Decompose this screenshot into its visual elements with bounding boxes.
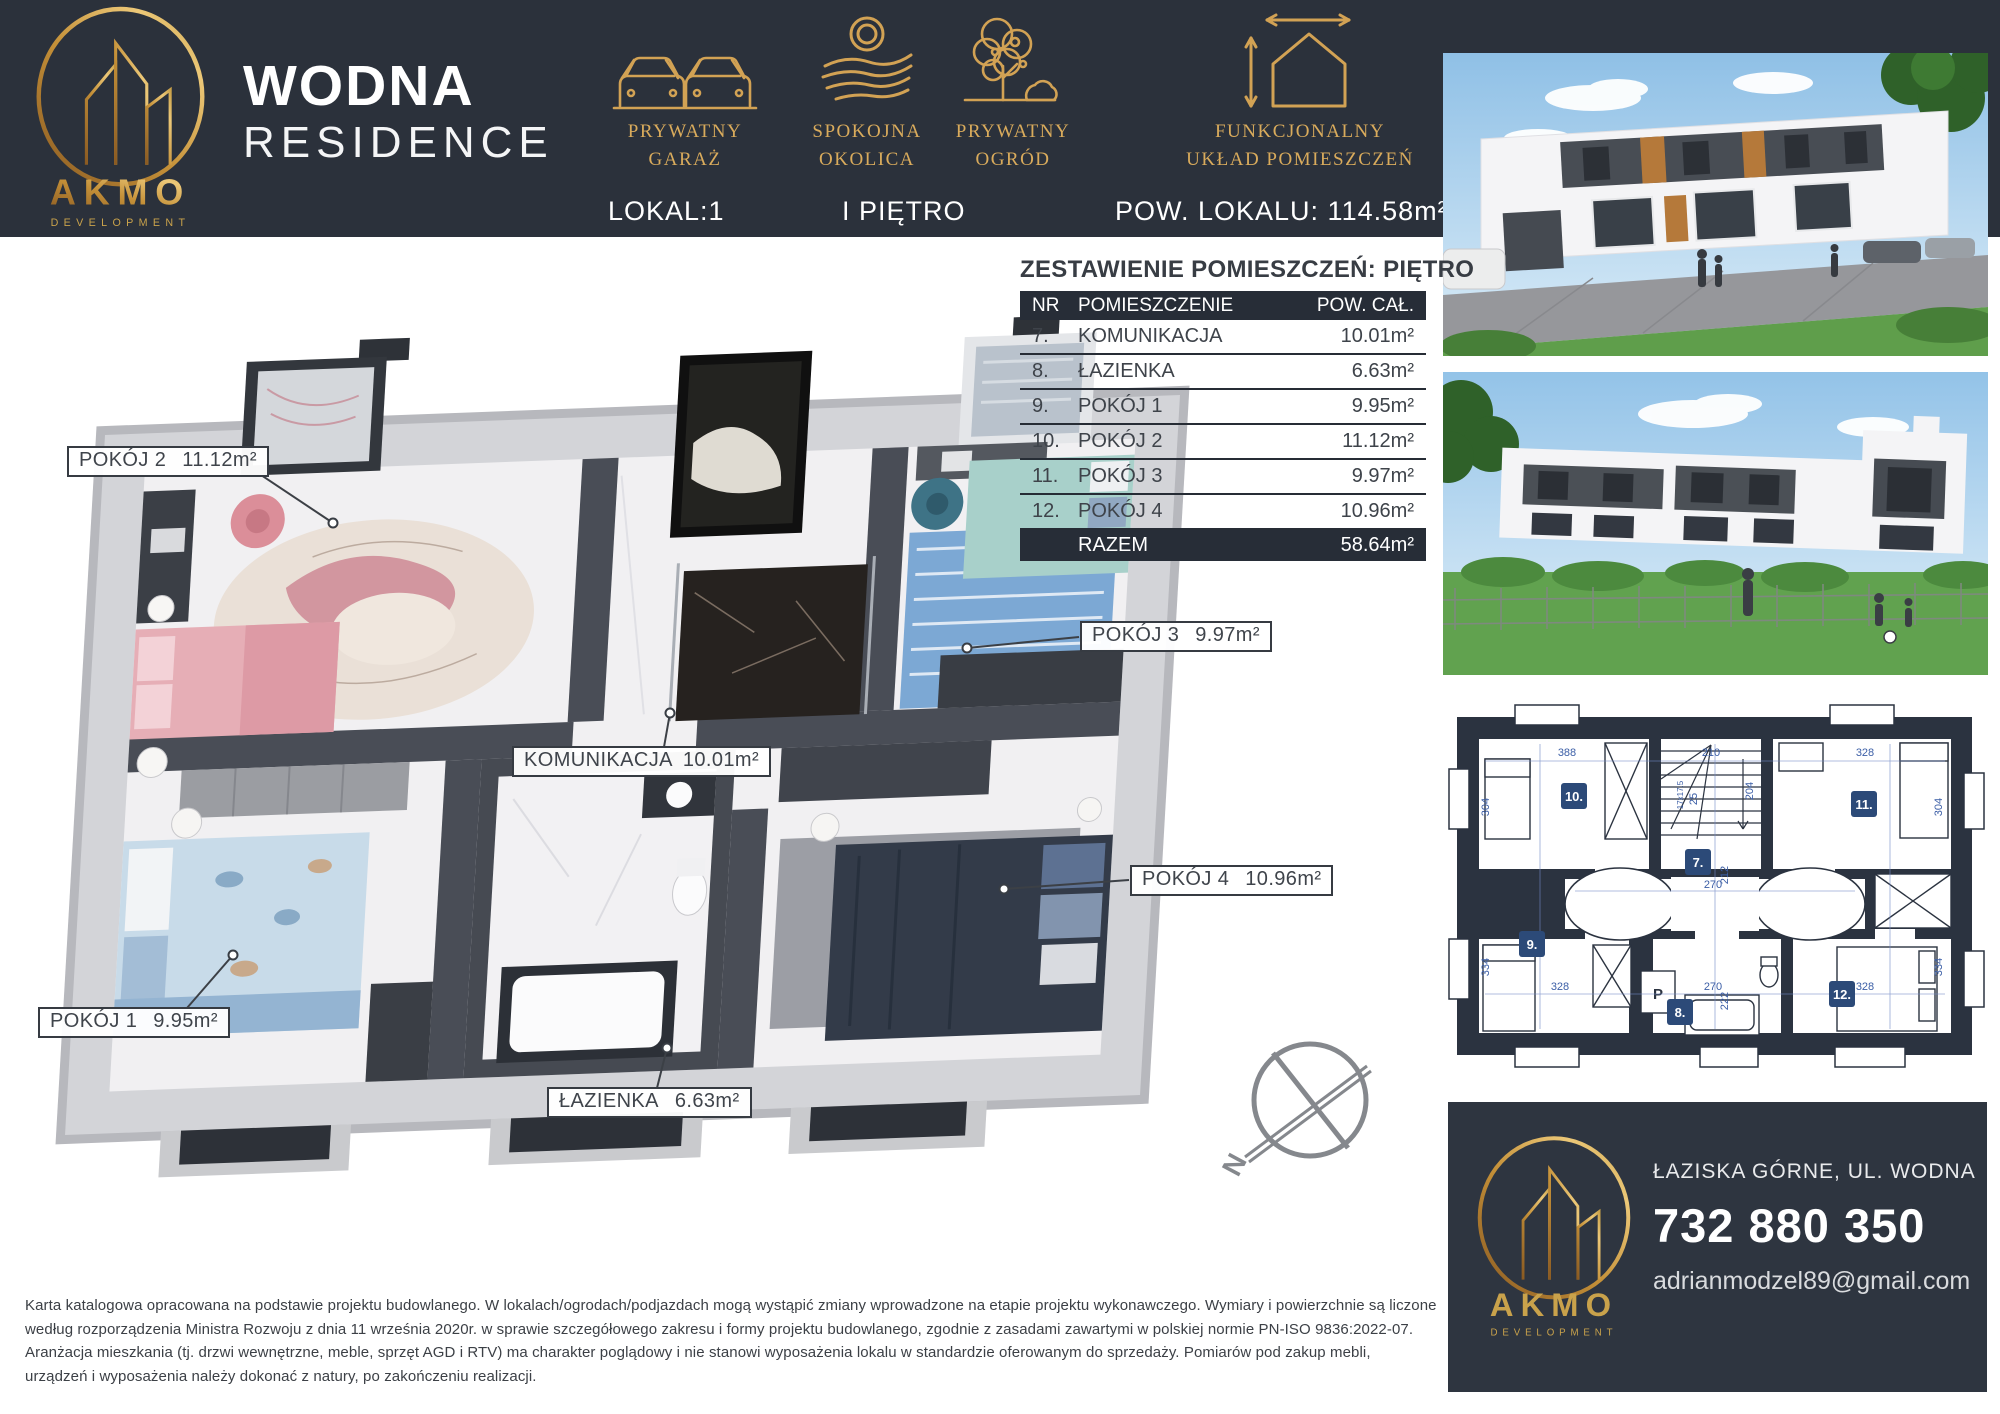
floor-name: I PIĘTRO (842, 196, 966, 227)
corridor-komunikacja (669, 556, 874, 721)
house-dimensions-icon (1237, 12, 1363, 112)
photo-building-street-view (1443, 53, 1988, 356)
svg-text:25: 25 (1688, 793, 1700, 805)
rooms-table-header: NR POMIESZCZENIE POW. CAŁ. (1020, 291, 1426, 320)
feature-label: FUNKCJONALNYUKŁAD POMIESZCZEŃ (1160, 118, 1440, 173)
svg-text:9.: 9. (1527, 937, 1538, 952)
compass-north-letter: N (1216, 1148, 1253, 1180)
brand-subtitle: DEVELOPMENT (1491, 1327, 1618, 1338)
table-row: 11.POKÓJ 39.97m² (1020, 460, 1426, 495)
feature-quiet-area: SPOKOJNAOKOLICA (782, 0, 952, 185)
brand-name: AKMO (1490, 1286, 1618, 1323)
label-pokoj4: POKÓJ 410.96m² (1130, 865, 1333, 896)
project-title: WODNA RESIDENCE (243, 58, 554, 165)
col-area: POW. CAŁ. (1296, 295, 1414, 317)
label-komunikacja: KOMUNIKACJA10.01m² (512, 746, 771, 777)
svg-text:17x17.5: 17x17.5 (1676, 780, 1685, 809)
washer-label: P (1653, 986, 1663, 1003)
contact-logo: AKMO DEVELOPMENT (1470, 1124, 1638, 1354)
logo-building-icon (79, 43, 178, 165)
car-dark (1863, 241, 1921, 263)
svg-text:304: 304 (1480, 798, 1492, 816)
svg-text:204: 204 (1744, 782, 1756, 800)
svg-text:210: 210 (1702, 747, 1720, 759)
rooms-table: ZESTAWIENIE POMIESZCZEŃ: PIĘTRO NR POMIE… (1020, 256, 1426, 561)
feature-functional-layout: FUNKCJONALNYUKŁAD POMIESZCZEŃ (1160, 0, 1440, 185)
room-lazienka (463, 750, 735, 1078)
col-name: POMIESZCZENIE (1078, 295, 1296, 317)
label-pokoj2: POKÓJ 211.12m² (67, 446, 269, 477)
svg-text:328: 328 (1856, 981, 1874, 993)
table-row: 12.POKÓJ 410.96m² (1020, 495, 1426, 530)
svg-text:334: 334 (1480, 958, 1492, 976)
tree-icon (951, 12, 1075, 112)
feature-label: PRYWATNYOGRÓD (928, 118, 1098, 173)
svg-text:388: 388 (1558, 747, 1576, 759)
compass-icon: N (1216, 1044, 1371, 1181)
svg-text:270: 270 (1704, 981, 1722, 993)
svg-text:328: 328 (1856, 747, 1874, 759)
contact-address: ŁAZISKA GÓRNE, UL. WODNA (1653, 1160, 1976, 1184)
landscape-icon (809, 14, 925, 114)
cars-icon (610, 38, 760, 114)
table-row: 9.POKÓJ 19.95m² (1020, 390, 1426, 425)
label-pokoj1: POKÓJ 19.95m² (38, 1007, 230, 1038)
project-title-line1: WODNA (243, 58, 554, 115)
contact-card: AKMO DEVELOPMENT ŁAZISKA GÓRNE, UL. WODN… (1448, 1102, 1987, 1392)
rooms-table-title: ZESTAWIENIE POMIESZCZEŃ: PIĘTRO (1020, 256, 1426, 284)
svg-text:212: 212 (1719, 866, 1731, 884)
contact-email: adrianmodzel89@gmail.com (1653, 1267, 1976, 1296)
svg-text:12.: 12. (1833, 987, 1851, 1002)
svg-text:10.: 10. (1565, 789, 1583, 804)
svg-text:8.: 8. (1675, 1005, 1686, 1020)
feature-label: SPOKOJNAOKOLICA (782, 118, 952, 173)
feature-label: PRYWATNYGARAŻ (600, 118, 770, 173)
floor-plan-2d: P 388 210 328 304 334 304 334 270 212 27… (1445, 699, 1988, 1074)
catalog-card-page: AKMO DEVELOPMENT WODNA RESIDENCE PRYWATN… (0, 0, 2000, 1414)
table-row: 8.ŁAZIENKA6.63m² (1020, 355, 1426, 390)
label-lazienka: ŁAZIENKA6.63m² (547, 1087, 752, 1118)
photo-building-garden-view (1443, 372, 1988, 675)
col-nr: NR (1032, 295, 1078, 317)
svg-text:334: 334 (1933, 958, 1945, 976)
feature-private-garden: PRYWATNYOGRÓD (928, 0, 1098, 185)
feature-private-garage: PRYWATNYGARAŻ (600, 0, 770, 185)
table-total-row: RAZEM58.64m² (1020, 530, 1426, 561)
label-pokoj3: POKÓJ 39.97m² (1080, 621, 1272, 652)
contact-phone: 732 880 350 (1653, 1198, 1976, 1253)
svg-text:222: 222 (1719, 992, 1731, 1010)
svg-text:328: 328 (1551, 981, 1569, 993)
svg-text:304: 304 (1933, 798, 1945, 816)
wall-artwork (670, 351, 812, 538)
svg-text:11.: 11. (1855, 797, 1872, 812)
unit-area: POW. LOKALU: 114.58m² (1115, 196, 1448, 227)
table-row: 10.POKÓJ 211.12m² (1020, 425, 1426, 460)
brand-name: AKMO (50, 172, 191, 213)
table-row: 7.KOMUNIKACJA10.01m² (1020, 320, 1426, 355)
legal-disclaimer: Karta katalogowa opracowana na podstawie… (25, 1294, 1437, 1388)
logo-circle (39, 9, 203, 184)
unit-number: LOKAL:1 (608, 196, 725, 227)
svg-text:7.: 7. (1693, 855, 1704, 870)
brand-subtitle: DEVELOPMENT (51, 217, 191, 229)
brand-logo: AKMO DEVELOPMENT (28, 6, 213, 234)
project-title-line2: RESIDENCE (243, 121, 554, 165)
logo-building-icon (1516, 1169, 1606, 1280)
